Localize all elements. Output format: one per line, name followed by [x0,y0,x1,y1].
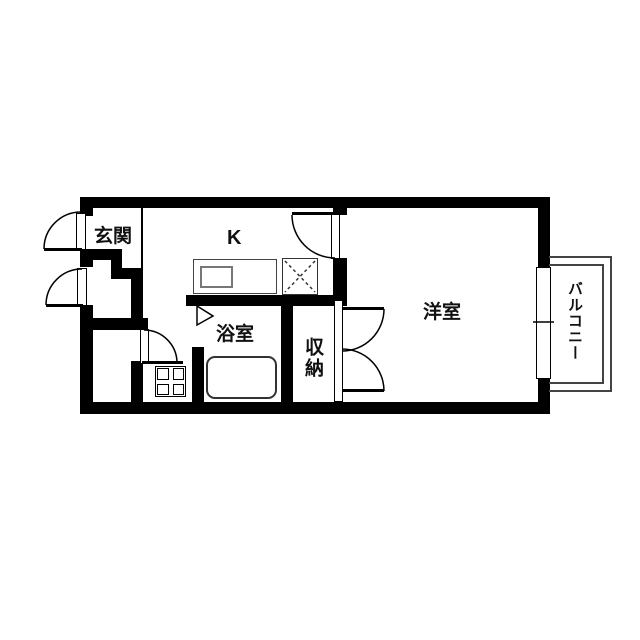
closet-front-line [334,300,343,402]
floor-plan: 玄関 K 浴室 収納 洋室 バルコニー [0,0,640,640]
kitchen-room-door-arc [292,215,335,258]
closet-door-top-leaf [342,307,384,310]
closet-door-bottom-arc [342,349,384,391]
bathroom-label: 浴室 [216,319,254,346]
pan-cell [157,384,169,396]
meter-box-door-icon [77,268,87,306]
entrance-door-open-line [44,248,82,251]
wall-outer-top [80,197,550,208]
washing-machine-pan-icon [155,366,186,397]
genkan-boundary-line [141,208,143,270]
wall-outer-left-lower [80,305,93,414]
pan-cell [173,368,185,380]
bathtub-icon [206,356,277,399]
kitchen-room-door-icon [331,214,340,259]
toilet-door-icon [140,329,149,364]
wall-toilet-right-lower [131,361,143,402]
kitchen-room-door-open-line [292,212,336,215]
kitchen-sink-icon [200,266,233,288]
closet-label: 収納 [299,337,326,379]
wall-outer-bottom [80,402,550,414]
wall-kitchen-bath [186,295,347,306]
entrance-door-icon [76,213,86,250]
pan-cell [173,384,185,396]
western-room-label: 洋室 [423,297,461,324]
wall-bath-right [281,306,293,402]
wall-partition-mid [333,258,347,300]
toilet-door-open-line [142,361,183,364]
closet-door-top-arc [342,309,384,351]
appliance-space-icon [282,258,318,295]
balcony-label: バルコニー [564,281,585,361]
wall-bath-left [192,347,204,402]
closet-door-bottom-leaf [342,389,384,392]
meter-box-door-open-line [46,304,83,307]
pan-cell [157,368,169,380]
bath-folding-door-icon [197,306,213,325]
genkan-label: 玄関 [94,221,132,248]
kitchen-label: K [227,227,241,250]
